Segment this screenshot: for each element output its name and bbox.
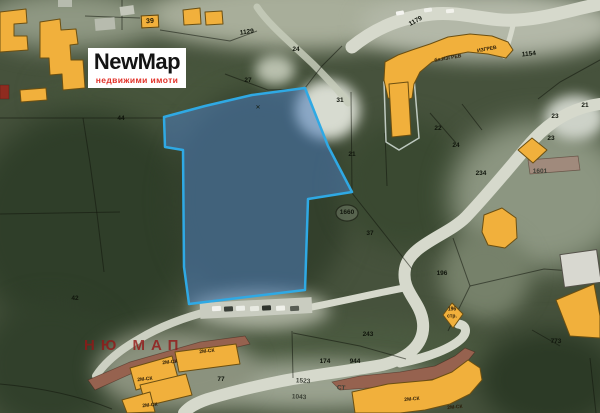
map-label: 2М-СК — [447, 405, 463, 411]
map-label: 2М-СК — [162, 360, 178, 367]
satellite-map: 1129242731212224232321234160116603742441… — [0, 0, 600, 413]
map-label: 24 — [452, 143, 459, 150]
map-label: 234 — [476, 171, 487, 178]
map-label: 21 — [581, 103, 588, 110]
watermark-text: НЮ МАП — [84, 337, 184, 354]
map-label: бл.ИЗГРЕВ — [434, 54, 462, 64]
map-label: 2М-СК — [142, 403, 158, 410]
map-label: 21 — [348, 152, 355, 159]
map-label: 42 — [71, 296, 78, 303]
map-label: 2М-СК — [404, 397, 420, 403]
map-label: 174 — [320, 359, 331, 366]
map-label: 23 — [547, 136, 554, 143]
map-label: 196 — [437, 271, 448, 278]
map-label: 1601 — [533, 169, 547, 176]
map-label: 243 — [363, 332, 374, 339]
map-label: 944 — [350, 359, 361, 366]
map-label: 22 — [434, 126, 441, 133]
map-label: 773 — [551, 339, 562, 346]
map-label: 1129 — [240, 29, 255, 37]
map-label: СТ — [336, 385, 345, 392]
map-label: 23 — [551, 114, 558, 121]
map-label: 1179 — [408, 16, 424, 28]
map-label: ✕ — [255, 105, 260, 111]
logo-subtitle: недвижими имоти — [96, 75, 179, 85]
map-label: 1660 — [340, 210, 354, 217]
map-label: стр. — [447, 315, 457, 320]
logo-title: NewMap — [94, 51, 180, 73]
map-label: 1043 — [292, 394, 307, 401]
plot-number-chip: 39 — [141, 15, 160, 29]
map-label: ИЗГРЕВ — [477, 46, 497, 54]
map-label: 44 — [117, 116, 124, 123]
map-label: 31 — [336, 98, 343, 105]
map-label: 196 — [448, 308, 456, 313]
map-label: 27 — [244, 78, 251, 85]
map-label: 77 — [217, 377, 224, 384]
newmap-logo: NewMap недвижими имоти — [88, 48, 186, 88]
map-label: 1523 — [296, 378, 311, 385]
map-label: 2М-СК — [137, 377, 153, 384]
map-label: 1154 — [522, 51, 537, 59]
map-label: 2М-СК — [199, 349, 215, 356]
map-label: 37 — [366, 231, 373, 238]
map-label: 24 — [292, 47, 299, 54]
